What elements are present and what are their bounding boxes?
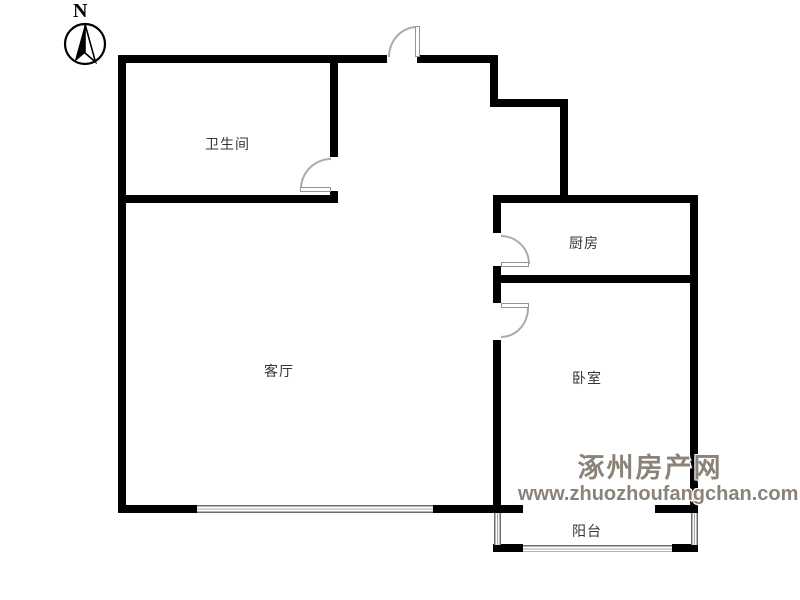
wall-kitchen-left-lower [493, 266, 501, 303]
wall-exterior-left [118, 55, 126, 513]
wall-balcony-corner-left [493, 544, 523, 552]
balcony-window-left [494, 513, 501, 545]
bathroom-door-leaf [300, 187, 331, 192]
compass-north-label: N [73, 0, 87, 23]
bedroom-door-swing [501, 308, 529, 338]
entry-door-leaf [415, 26, 420, 57]
room-label-bathroom: 卫生间 [205, 134, 250, 154]
wall-step-horizontal [490, 99, 568, 107]
wall-bedroom-bottom-right-stub [655, 505, 698, 513]
floor-plan: N 卫生间 厨房 客厅 卧室 [0, 0, 800, 600]
watermark: 涿州房产网 www.zhuozhoufangchan.com [518, 454, 782, 506]
watermark-site-url: www.zhuozhoufangchan.com [518, 484, 782, 506]
balcony-window-bottom [523, 545, 672, 552]
wall-bedroom-left [493, 340, 501, 513]
compass-icon [62, 21, 108, 67]
wall-bathroom-bottom [118, 195, 338, 203]
wall-kitchen-left-upper [493, 195, 501, 233]
balcony-window-right [691, 513, 698, 545]
wall-living-bottom-left [118, 505, 197, 513]
wall-kitchen-top [493, 195, 698, 203]
wall-entry-right [560, 99, 568, 203]
wall-top-right [417, 55, 498, 63]
kitchen-door-leaf [501, 262, 529, 267]
room-label-balcony: 阳台 [572, 521, 602, 541]
kitchen-door-swing [501, 235, 530, 264]
room-label-living-room: 客厅 [264, 361, 294, 381]
entry-door-swing [388, 26, 417, 57]
wall-balcony-corner-right [672, 544, 698, 552]
bathroom-door-swing [300, 158, 331, 189]
watermark-site-name: 涿州房产网 [518, 454, 782, 483]
wall-living-bottom-right [433, 505, 501, 513]
room-label-bedroom: 卧室 [572, 368, 602, 388]
wall-bathroom-right-upper [330, 55, 338, 157]
room-label-kitchen: 厨房 [569, 233, 599, 253]
living-room-window [197, 505, 433, 513]
wall-top-left [118, 55, 387, 63]
wall-bedroom-bottom-left-stub [493, 505, 523, 513]
bedroom-door-leaf [501, 303, 529, 308]
wall-kitchen-bottom [493, 275, 698, 283]
